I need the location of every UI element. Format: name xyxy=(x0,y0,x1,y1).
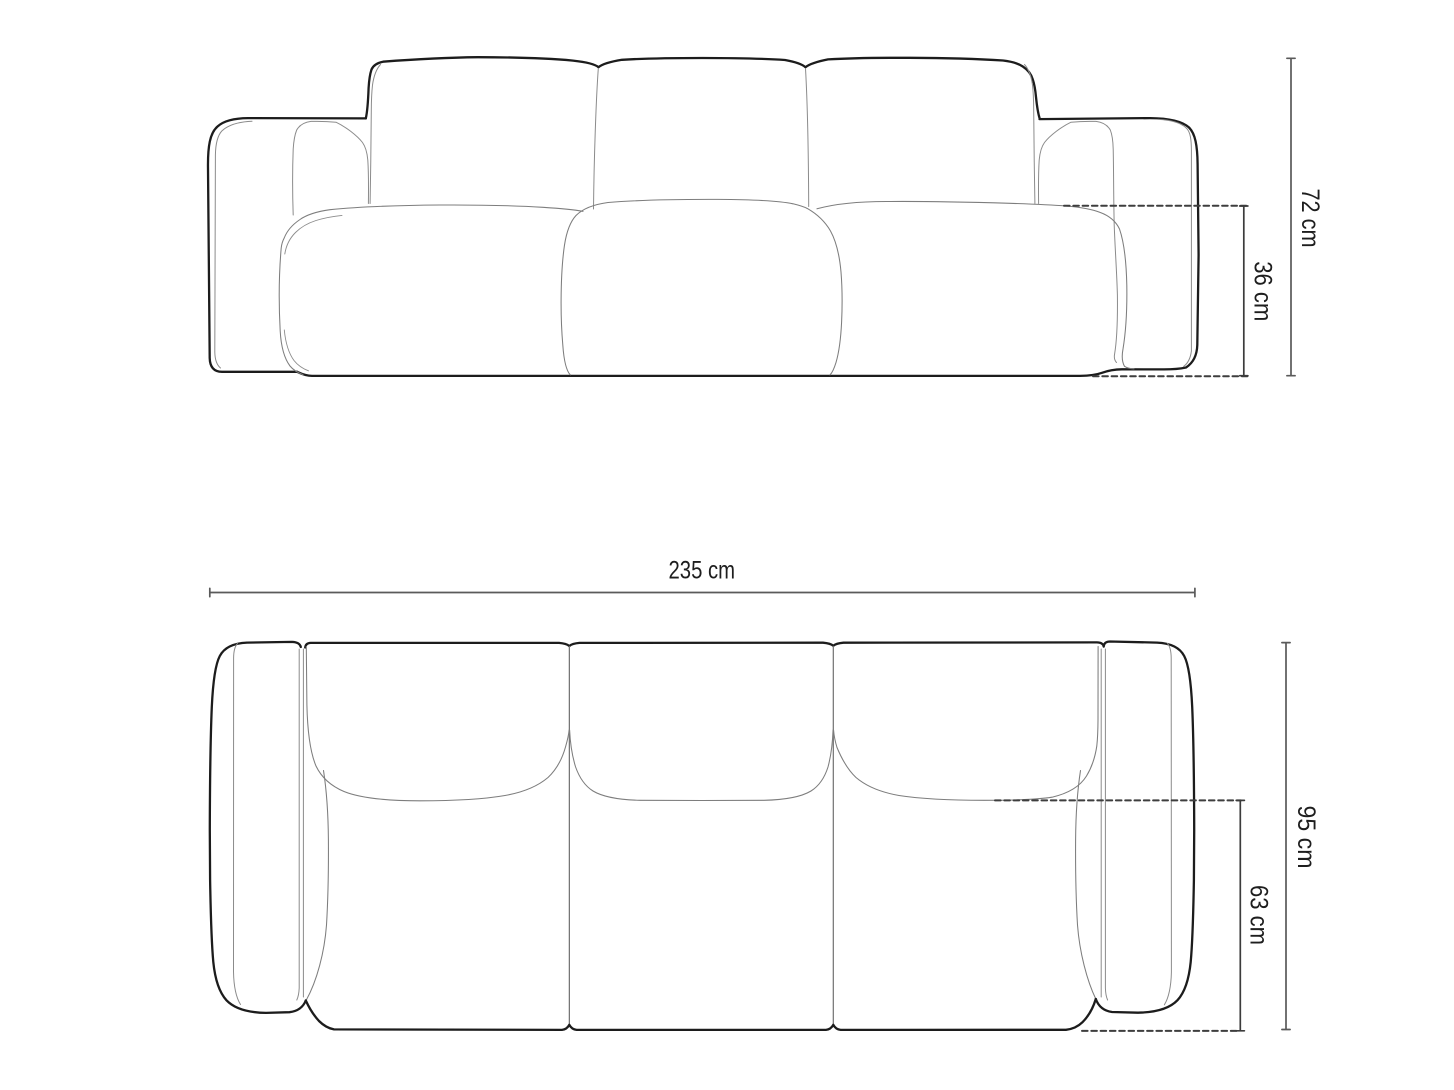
svg-text:72 cm: 72 cm xyxy=(1296,189,1324,248)
svg-text:36 cm: 36 cm xyxy=(1248,261,1276,321)
svg-text:63 cm: 63 cm xyxy=(1244,885,1272,945)
svg-text:235 cm: 235 cm xyxy=(669,556,736,584)
svg-text:95 cm: 95 cm xyxy=(1292,806,1320,869)
